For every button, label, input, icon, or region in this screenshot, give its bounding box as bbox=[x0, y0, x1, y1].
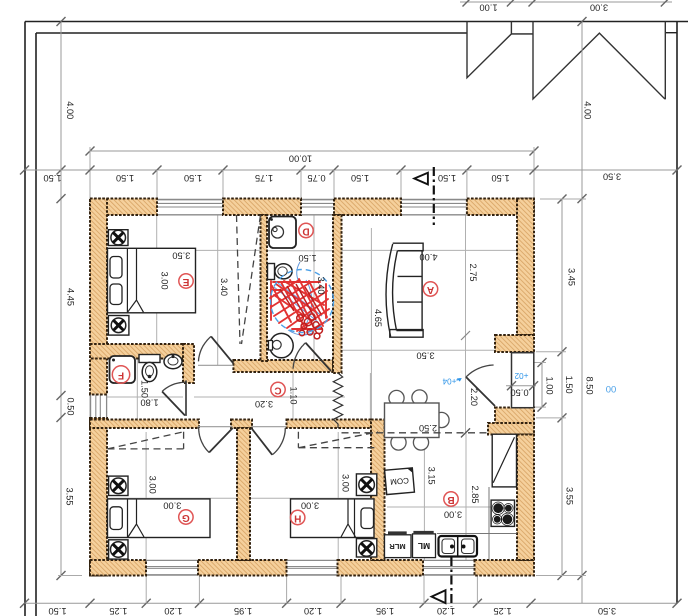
svg-text:1.50: 1.50 bbox=[298, 253, 316, 263]
svg-text:0.50: 0.50 bbox=[510, 387, 528, 397]
svg-text:3.50: 3.50 bbox=[598, 606, 616, 616]
svg-text:3.40: 3.40 bbox=[316, 276, 326, 294]
svg-text:G: G bbox=[182, 512, 190, 523]
svg-text:1.25: 1.25 bbox=[109, 606, 127, 616]
svg-text:3.50: 3.50 bbox=[416, 351, 434, 361]
svg-text:1.50: 1.50 bbox=[140, 380, 150, 398]
svg-text:A: A bbox=[427, 284, 434, 295]
svg-text:1.50: 1.50 bbox=[116, 173, 134, 183]
svg-text:1.95: 1.95 bbox=[376, 606, 394, 616]
svg-text:3.00: 3.00 bbox=[301, 501, 319, 511]
svg-text:1.00: 1.00 bbox=[479, 3, 497, 13]
svg-text:3.00: 3.00 bbox=[159, 272, 169, 290]
svg-text:4.65: 4.65 bbox=[373, 309, 383, 327]
svg-text:1.75: 1.75 bbox=[255, 173, 273, 183]
svg-text:3.50: 3.50 bbox=[603, 171, 621, 181]
svg-text:3.55: 3.55 bbox=[65, 487, 75, 505]
svg-text:2.20: 2.20 bbox=[469, 388, 479, 406]
svg-text:3.00: 3.00 bbox=[444, 510, 462, 520]
svg-text:0.50: 0.50 bbox=[66, 397, 76, 415]
svg-text:1.50: 1.50 bbox=[48, 606, 66, 616]
svg-text:E: E bbox=[182, 276, 189, 287]
svg-text:1.00: 1.00 bbox=[545, 377, 555, 395]
svg-text:1.50: 1.50 bbox=[351, 173, 369, 183]
svg-text:MLR: MLR bbox=[389, 542, 406, 551]
svg-text:3.40: 3.40 bbox=[219, 278, 229, 296]
svg-text:10.00: 10.00 bbox=[289, 153, 312, 163]
svg-text:2.50: 2.50 bbox=[419, 423, 437, 433]
svg-text:3.50: 3.50 bbox=[172, 250, 190, 260]
svg-text:COM: COM bbox=[389, 476, 409, 487]
svg-text:00: 00 bbox=[606, 383, 617, 394]
svg-text:3.00: 3.00 bbox=[341, 474, 351, 492]
svg-text:3.00: 3.00 bbox=[147, 476, 157, 494]
svg-text:2.85: 2.85 bbox=[470, 485, 480, 503]
svg-text:1.20: 1.20 bbox=[304, 606, 322, 616]
svg-text:1.95: 1.95 bbox=[234, 606, 252, 616]
svg-text:0.75: 0.75 bbox=[307, 173, 325, 183]
svg-text:4.45: 4.45 bbox=[66, 288, 76, 306]
svg-text:D: D bbox=[302, 226, 309, 237]
svg-text:+02: +02 bbox=[514, 371, 528, 380]
svg-text:3.20: 3.20 bbox=[255, 399, 273, 409]
svg-text:1.50: 1.50 bbox=[43, 173, 61, 183]
svg-text:B: B bbox=[447, 494, 454, 505]
svg-text:H: H bbox=[294, 513, 301, 524]
svg-text:3.45: 3.45 bbox=[567, 268, 577, 286]
svg-text:8.50: 8.50 bbox=[584, 377, 594, 395]
svg-text:1.50: 1.50 bbox=[184, 173, 202, 183]
svg-text:2.75: 2.75 bbox=[468, 263, 478, 281]
svg-text:3.15: 3.15 bbox=[427, 467, 437, 485]
svg-text:1.25: 1.25 bbox=[493, 606, 511, 616]
svg-text:C: C bbox=[274, 385, 281, 396]
svg-text:3.00: 3.00 bbox=[163, 501, 181, 511]
svg-text:3.55: 3.55 bbox=[565, 487, 575, 505]
svg-text:4.00: 4.00 bbox=[419, 252, 437, 262]
svg-text:1.20: 1.20 bbox=[437, 606, 455, 616]
svg-text:F: F bbox=[118, 370, 124, 381]
svg-text:1.50: 1.50 bbox=[491, 173, 509, 183]
svg-text:1.10: 1.10 bbox=[289, 386, 299, 404]
svg-text:1.50: 1.50 bbox=[564, 376, 574, 394]
svg-text:4.00: 4.00 bbox=[65, 101, 75, 119]
svg-text:4.00: 4.00 bbox=[583, 101, 593, 119]
svg-text:1.20: 1.20 bbox=[164, 606, 182, 616]
svg-text:+04: +04 bbox=[442, 377, 456, 386]
svg-text:1.80: 1.80 bbox=[140, 398, 158, 408]
svg-text:ML: ML bbox=[418, 541, 430, 551]
svg-text:1.50: 1.50 bbox=[438, 173, 456, 183]
svg-text:3.00: 3.00 bbox=[590, 3, 608, 13]
